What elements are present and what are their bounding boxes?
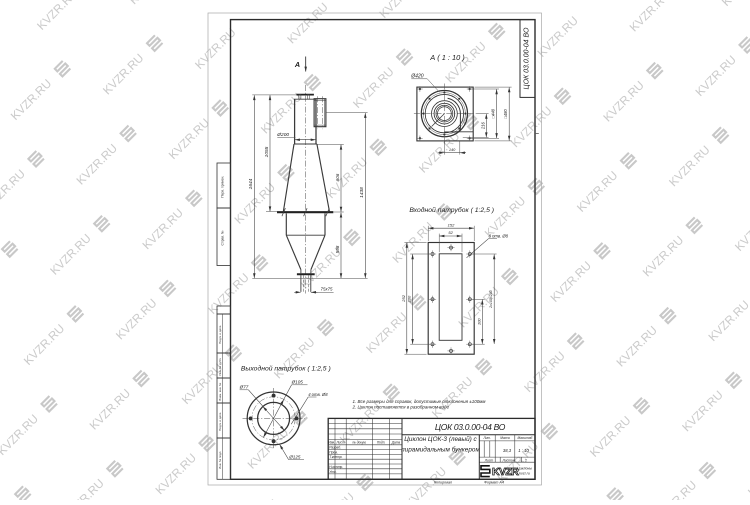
svg-text:1. Все размеры для справок, до: 1. Все размеры для справок, допустимые о… xyxy=(353,399,486,404)
svg-text:Инв. № дубл.: Инв. № дубл. xyxy=(218,358,222,376)
svg-text:Перв. примен.: Перв. примен. xyxy=(221,176,225,198)
svg-text:1644: 1644 xyxy=(248,178,254,189)
svg-text:ЦОК 03.0.00-04 ВО: ЦОК 03.0.00-04 ВО xyxy=(435,422,506,432)
svg-text:kvzr.ru: kvzr.ru xyxy=(519,472,530,476)
svg-text:Циклон ЦОК-3 (левый) с: Циклон ЦОК-3 (левый) с xyxy=(404,435,477,443)
svg-text:152: 152 xyxy=(448,222,455,227)
svg-text:□440: □440 xyxy=(491,108,496,118)
svg-text:4 отв. Ø8: 4 отв. Ø8 xyxy=(308,392,328,397)
svg-text:А ( 1 : 10 ): А ( 1 : 10 ) xyxy=(429,53,465,62)
svg-text:Разраб.: Разраб. xyxy=(329,446,341,450)
svg-text:№ докум.: № докум. xyxy=(352,440,366,444)
svg-text:Пров.: Пров. xyxy=(329,450,338,454)
svg-text:Выходной патрубок ( 1:2,5 ): Выходной патрубок ( 1:2,5 ) xyxy=(241,365,331,373)
svg-text:Подп. и дата: Подп. и дата xyxy=(218,325,222,344)
svg-text:KVZR: KVZR xyxy=(492,466,519,478)
svg-text:Ø125: Ø125 xyxy=(288,454,301,459)
svg-text:606: 606 xyxy=(335,173,340,181)
svg-text:200: 200 xyxy=(407,295,412,303)
svg-text:Копировал: Копировал xyxy=(434,480,452,484)
svg-text:8 отв. Ø8: 8 отв. Ø8 xyxy=(489,233,509,238)
svg-text:Лит.: Лит. xyxy=(482,436,491,440)
svg-text:Лист: Лист xyxy=(484,458,494,462)
svg-text:А: А xyxy=(294,60,300,69)
svg-text:Ø200: Ø200 xyxy=(276,132,289,138)
svg-text:75х75: 75х75 xyxy=(321,287,334,292)
svg-text:1 : 10: 1 : 10 xyxy=(518,448,529,453)
svg-text:38,3: 38,3 xyxy=(503,448,512,453)
svg-text:1438: 1438 xyxy=(359,187,365,198)
svg-text:Ø420: Ø420 xyxy=(410,73,423,79)
svg-text:Масса: Масса xyxy=(500,436,510,440)
svg-text:100: 100 xyxy=(476,318,481,325)
svg-text:□480: □480 xyxy=(503,109,508,119)
svg-text:Листов: Листов xyxy=(501,458,514,462)
svg-text:Подп.: Подп. xyxy=(377,440,386,444)
svg-text:216: 216 xyxy=(480,121,485,130)
svg-text:Масштаб: Масштаб xyxy=(517,436,532,440)
svg-text:Инв. № подл.: Инв. № подл. xyxy=(218,451,222,469)
svg-text:2х100=200: 2х100=200 xyxy=(489,290,493,308)
svg-text:1: 1 xyxy=(525,459,527,463)
svg-text:Подп. и дата: Подп. и дата xyxy=(218,412,222,431)
svg-text:Н.контр.: Н.контр. xyxy=(329,465,343,469)
svg-text:52: 52 xyxy=(448,230,453,235)
svg-text:Утв.: Утв. xyxy=(329,470,337,474)
svg-text:Взам. инв. №: Взам. инв. № xyxy=(218,383,222,401)
svg-text:Входной патрубок ( 1:2,5 ): Входной патрубок ( 1:2,5 ) xyxy=(409,206,494,214)
svg-text:1055: 1055 xyxy=(264,146,270,157)
svg-text:2. Циклон поставляется в разоб: 2. Циклон поставляется в разобранном вид… xyxy=(352,405,450,410)
svg-text:Лист: Лист xyxy=(335,440,345,444)
svg-text:252: 252 xyxy=(401,294,406,302)
svg-text:Ø105: Ø105 xyxy=(291,380,304,385)
svg-text:598: 598 xyxy=(335,245,340,253)
svg-text:ЦОК 03.0.00-04 ВО: ЦОК 03.0.00-04 ВО xyxy=(524,27,531,90)
svg-text:Изм.: Изм. xyxy=(328,440,335,444)
svg-text:пирамидальным бункером: пирамидальным бункером xyxy=(401,446,480,454)
svg-text:Справ. №: Справ. № xyxy=(221,230,225,245)
svg-text:Формат А4: Формат А4 xyxy=(484,480,504,484)
svg-text:Дата: Дата xyxy=(391,440,401,444)
svg-text:Ø77: Ø77 xyxy=(239,385,249,390)
svg-text:Т.контр.: Т.контр. xyxy=(329,455,342,459)
svg-text:Циклоны: Циклоны xyxy=(517,466,532,470)
svg-text:140: 140 xyxy=(449,147,456,152)
